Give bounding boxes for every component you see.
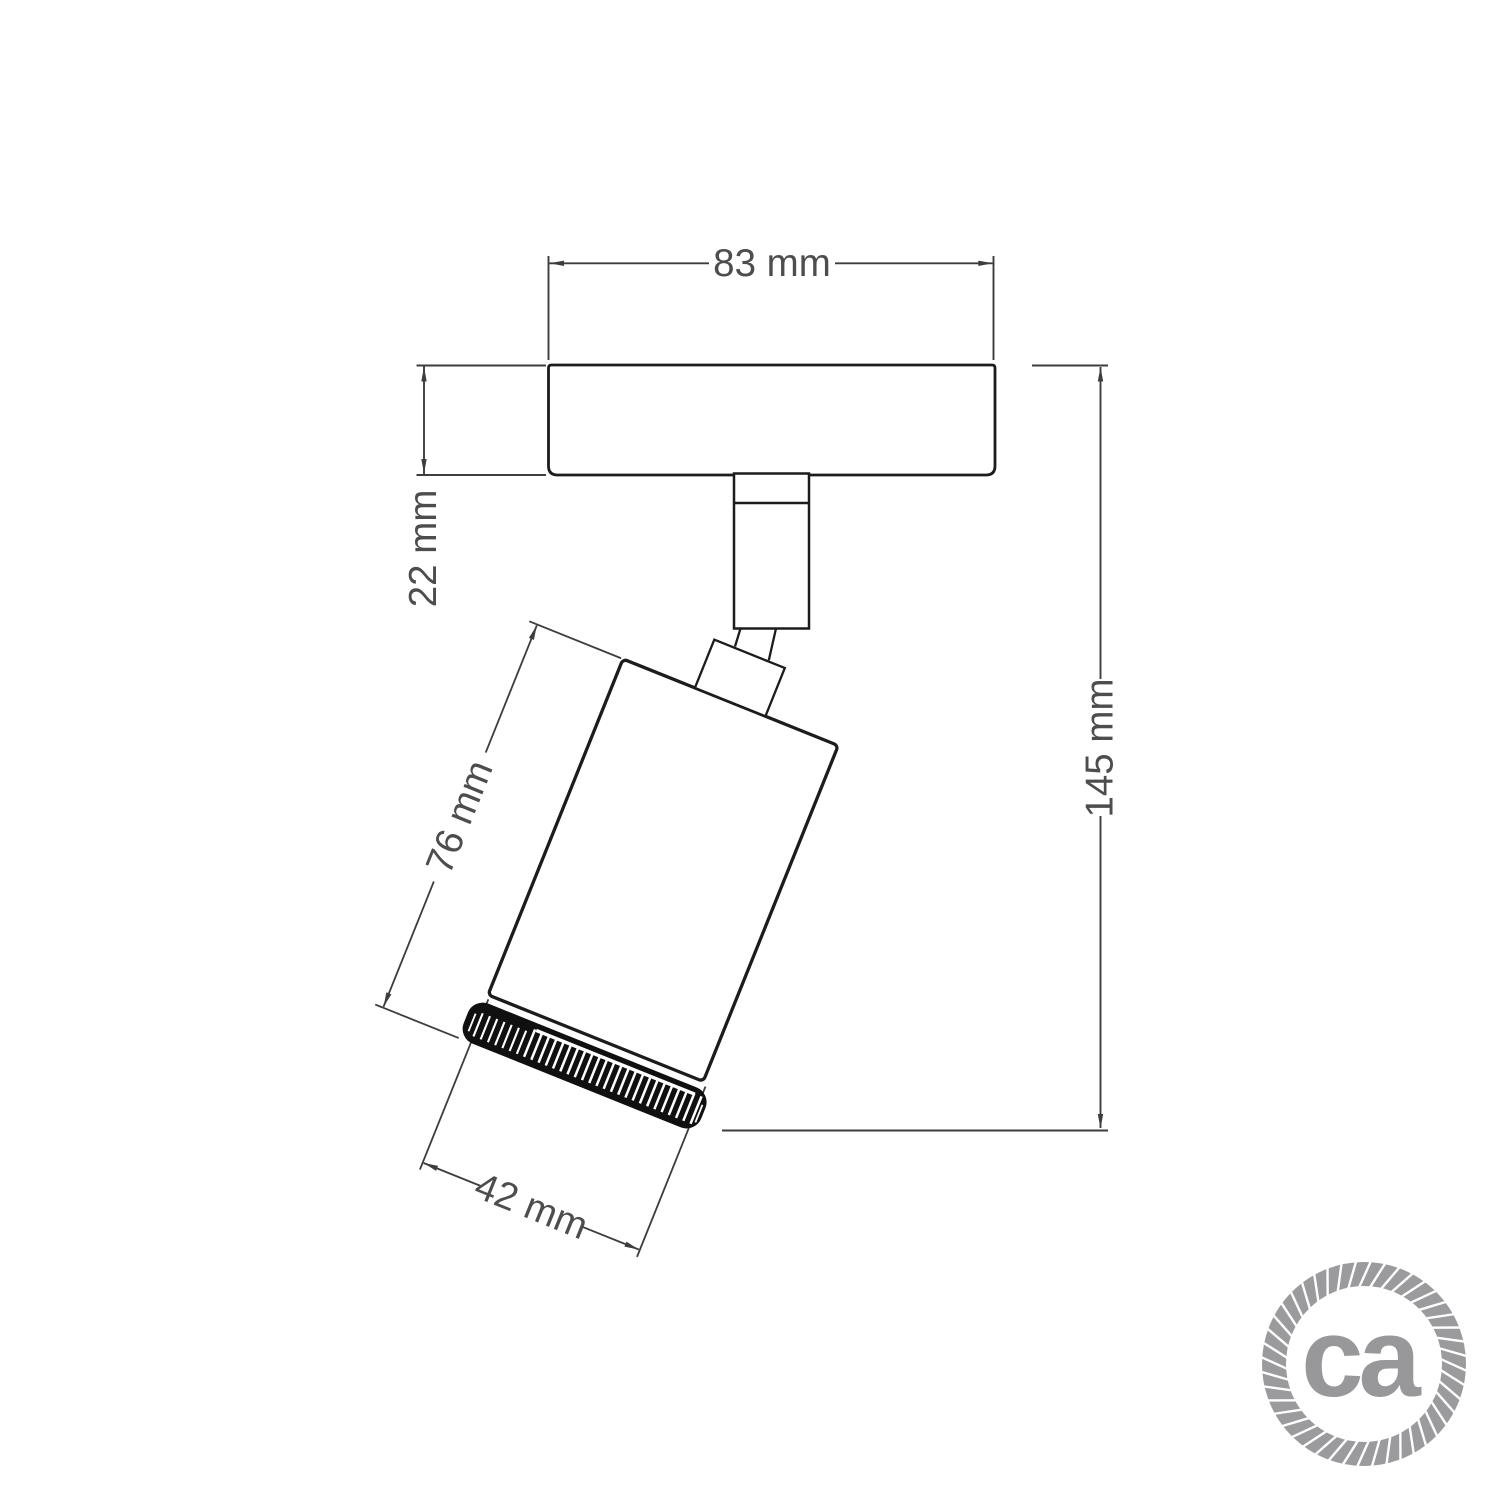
svg-text:83 mm: 83 mm (713, 242, 831, 285)
svg-text:ca: ca (1301, 1295, 1421, 1420)
svg-text:22 mm: 22 mm (402, 490, 445, 608)
svg-text:145 mm: 145 mm (1079, 678, 1122, 817)
